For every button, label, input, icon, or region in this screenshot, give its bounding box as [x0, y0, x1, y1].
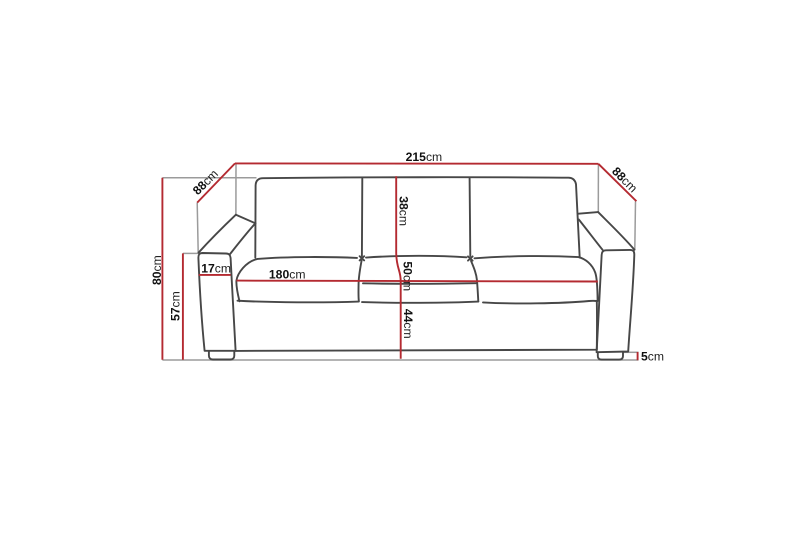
svg-text:180cm: 180cm	[269, 268, 306, 282]
svg-text:5cm: 5cm	[641, 349, 664, 363]
svg-text:17cm: 17cm	[201, 262, 231, 276]
svg-text:50cm: 50cm	[400, 261, 414, 291]
svg-text:44cm: 44cm	[401, 309, 415, 339]
svg-text:215cm: 215cm	[406, 150, 443, 164]
svg-text:80cm: 80cm	[150, 255, 164, 285]
svg-text:57cm: 57cm	[169, 291, 183, 321]
svg-text:38cm: 38cm	[397, 196, 411, 226]
